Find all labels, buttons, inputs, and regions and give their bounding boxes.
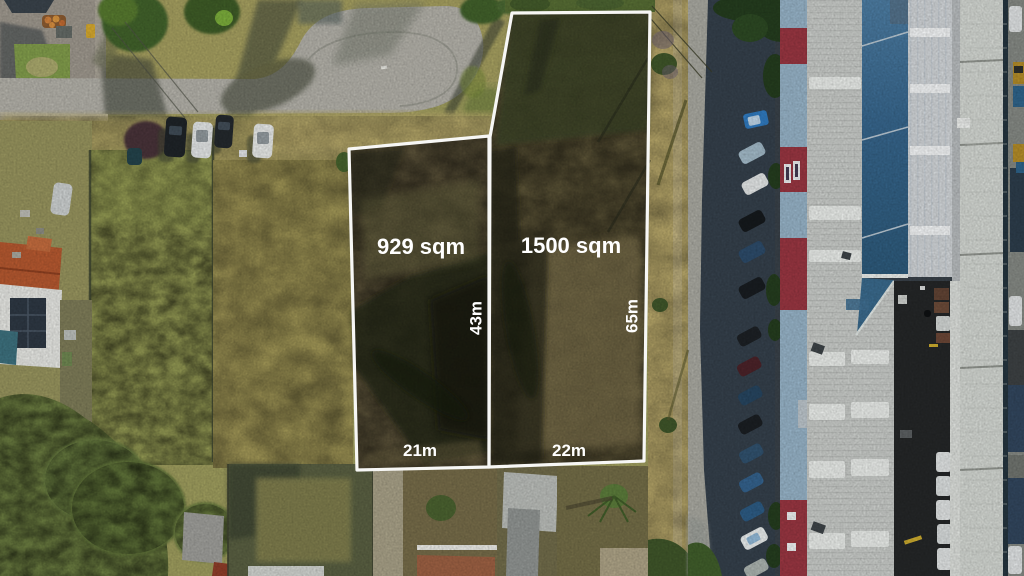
svg-text:21m: 21m bbox=[403, 441, 437, 460]
svg-text:65m: 65m bbox=[622, 299, 641, 333]
svg-text:22m: 22m bbox=[552, 441, 586, 460]
svg-text:43m: 43m bbox=[466, 301, 485, 335]
svg-text:929 sqm: 929 sqm bbox=[377, 234, 465, 259]
svg-text:1500 sqm: 1500 sqm bbox=[521, 233, 621, 258]
